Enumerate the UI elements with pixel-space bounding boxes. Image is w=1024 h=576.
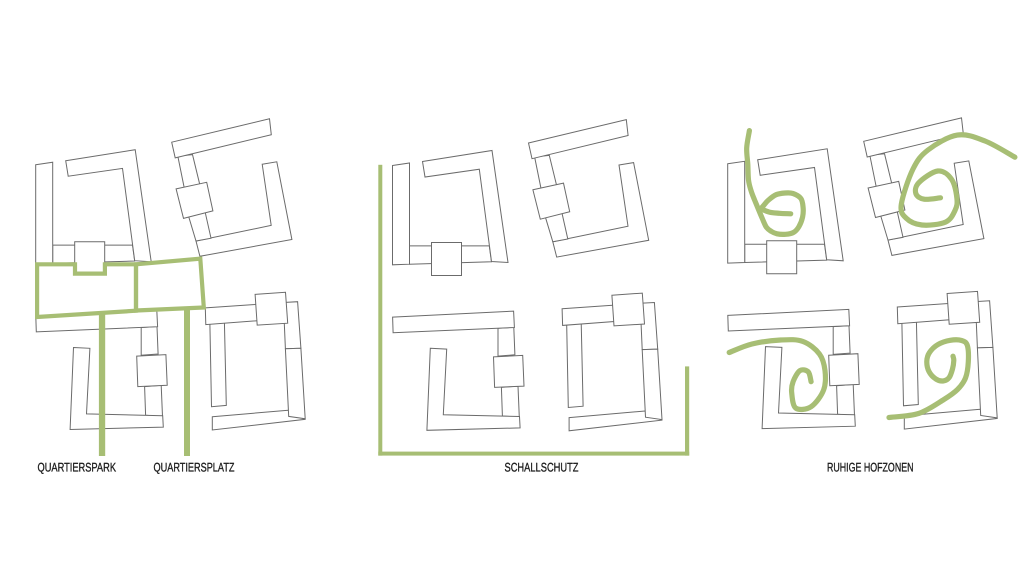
svg-text:SCHALLSCHUTZ: SCHALLSCHUTZ xyxy=(505,461,579,475)
svg-text:QUARTIERSPLATZ: QUARTIERSPLATZ xyxy=(154,461,235,475)
svg-text:RUHIGE HOFZONEN: RUHIGE HOFZONEN xyxy=(827,461,914,475)
svg-text:QUARTIERSPARK: QUARTIERSPARK xyxy=(38,461,117,475)
